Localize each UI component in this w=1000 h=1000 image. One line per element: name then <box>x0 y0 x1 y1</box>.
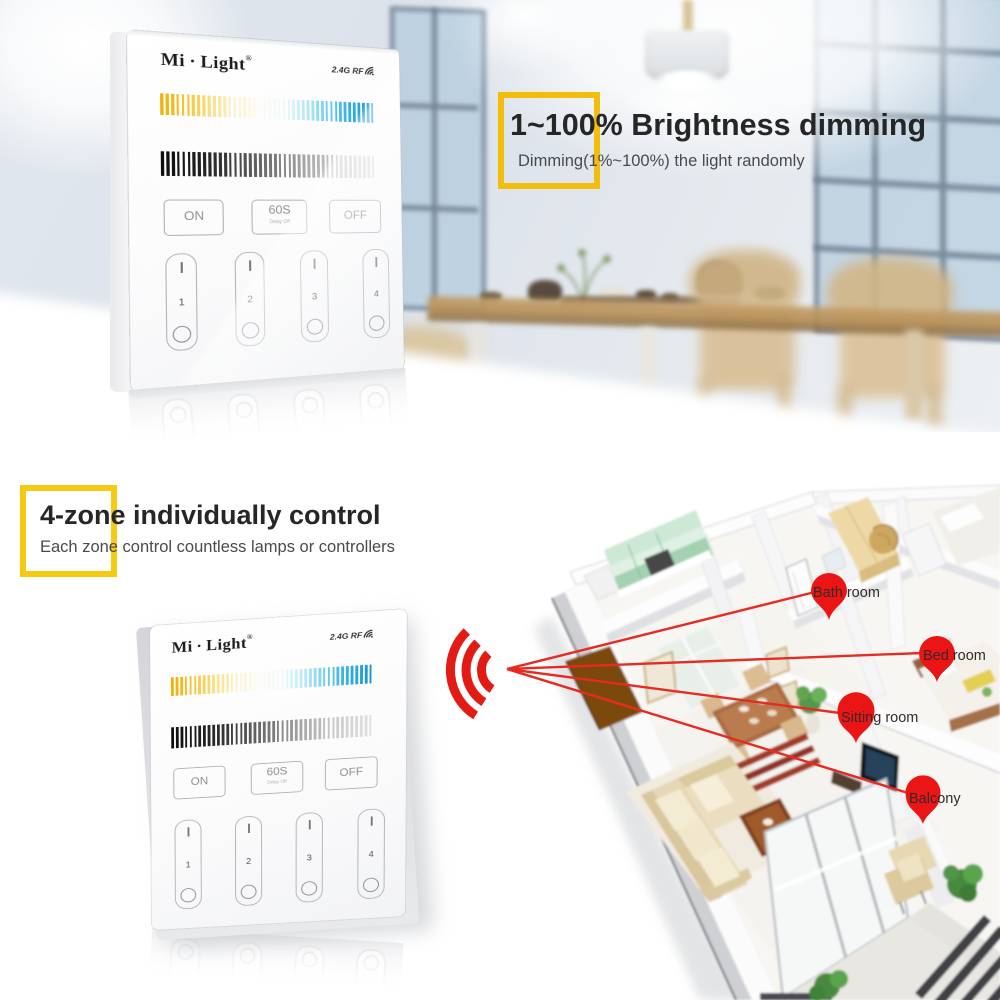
svg-text:Sitting room: Sitting room <box>841 710 918 726</box>
svg-text:Balcony: Balcony <box>909 791 961 807</box>
svg-text:Bed room: Bed room <box>923 648 986 664</box>
svg-text:Bath room: Bath room <box>813 585 880 601</box>
